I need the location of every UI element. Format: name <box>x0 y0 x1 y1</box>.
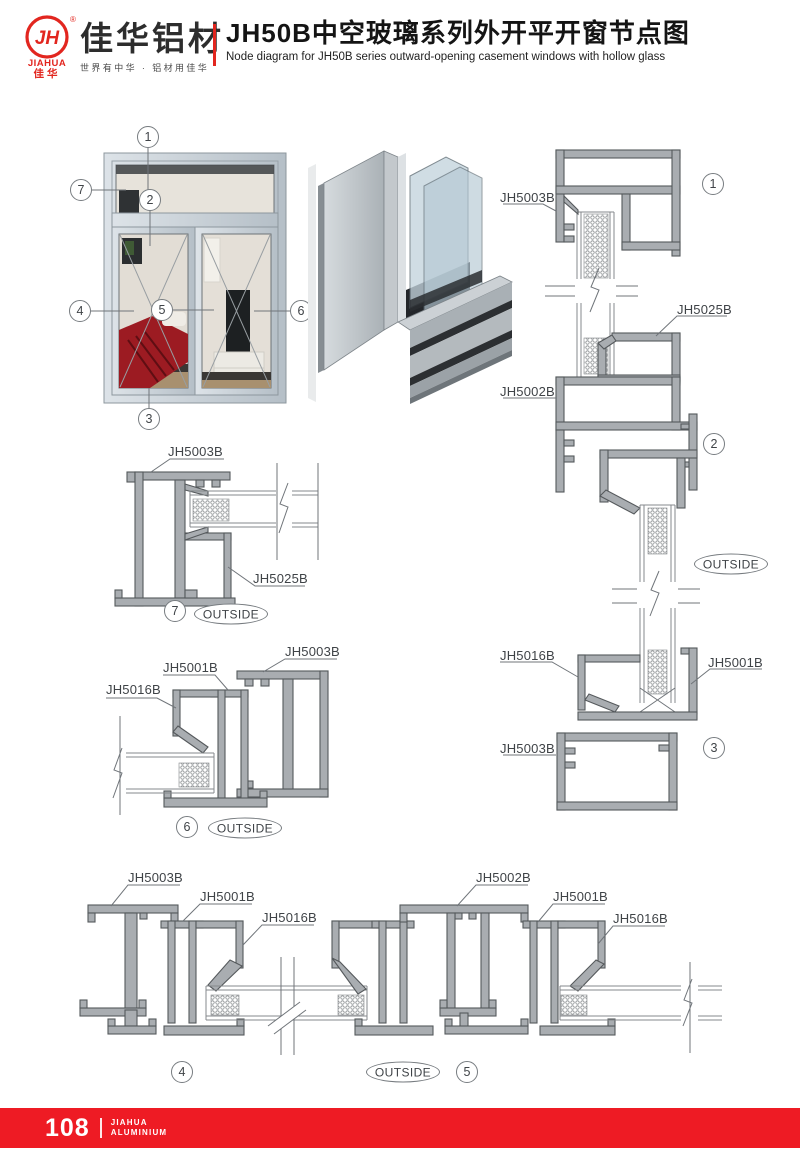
break-symbol-mullion <box>268 957 306 1055</box>
profile-jh5002b <box>556 375 697 430</box>
callout-2: 2 <box>139 189 161 211</box>
detail-1-number: 1 <box>702 173 724 195</box>
callout-4: 4 <box>69 300 91 322</box>
horizontal-section-drawing <box>75 860 730 1090</box>
registered-mark: ® <box>70 15 76 24</box>
callout-3: 3 <box>138 408 160 430</box>
detail-7-number: 7 <box>164 600 186 622</box>
profile-jh5016b-d4 <box>196 921 243 991</box>
brand-block: 佳华铝材 世界有中华 · 铝材用佳华 <box>80 22 224 74</box>
header: JH ® JIAHUA 佳华 佳华铝材 世界有中华 · 铝材用佳华 JH50B中… <box>0 0 800 80</box>
profile-jh5016b-d6 <box>173 690 218 753</box>
profile-3d-render <box>308 143 520 411</box>
transom-window <box>112 165 278 227</box>
break-symbol-d6 <box>110 716 126 815</box>
logo-monogram: JH <box>35 28 61 49</box>
vertical-section-drawing <box>495 145 800 813</box>
detail-5-number: 5 <box>456 1061 478 1083</box>
title-block: JH50B中空玻璃系列外开平开窗节点图 Node diagram for JH5… <box>226 20 690 63</box>
label-jh5001b-d5: JH5001B <box>553 889 608 904</box>
label-jh5016b-d6: JH5016B <box>106 682 161 697</box>
footer-brand-line1: JIAHUA <box>111 1118 168 1128</box>
window-elevation-drawing <box>60 125 310 437</box>
profile-jh5001b-d4 <box>161 921 244 1035</box>
outside-label-bottom: OUTSIDE <box>366 1062 440 1083</box>
label-jh5025b-d7: JH5025B <box>253 571 308 586</box>
page-subtitle: Node diagram for JH50B series outward-op… <box>226 51 690 63</box>
footer-brand-line2: ALUMINIUM <box>111 1128 168 1138</box>
label-jh5003b-d4: JH5003B <box>128 870 183 885</box>
detail-2-number: 2 <box>703 433 725 455</box>
footer-bar: 108 JIAHUA ALUMINIUM <box>0 1108 800 1148</box>
detail-7-drawing <box>100 442 325 630</box>
glass-unit-d6 <box>118 753 214 793</box>
detail-4-number: 4 <box>171 1061 193 1083</box>
break-symbol-d7 <box>276 463 318 560</box>
label-jh5001b-d3: JH5001B <box>708 655 763 670</box>
profile-jh5002b-d5 <box>400 905 528 1034</box>
jiahua-logo: JH ® JIAHUA 佳华 <box>17 11 79 75</box>
glass-unit-d7 <box>190 491 318 527</box>
outside-label-d2: OUTSIDE <box>694 554 768 575</box>
label-jh5003b-d3: JH5003B <box>500 741 555 756</box>
profile-jh5003b-d6 <box>237 671 328 797</box>
detail-3-number: 3 <box>703 737 725 759</box>
title-divider <box>213 24 216 66</box>
label-jh5002b-d5: JH5002B <box>476 870 531 885</box>
callout-5: 5 <box>151 299 173 321</box>
footer-brand: JIAHUA ALUMINIUM <box>111 1118 168 1138</box>
label-jh5003b-d1: JH5003B <box>500 190 555 205</box>
label-jh5016b-d3: JH5016B <box>500 648 555 663</box>
profile-jh5003b-sill <box>557 733 677 810</box>
label-jh5025b-d1: JH5025B <box>677 302 732 317</box>
catalog-page: JH ® JIAHUA 佳华 佳华铝材 世界有中华 · 铝材用佳华 JH50B中… <box>0 0 800 1167</box>
page-title: JH50B中空玻璃系列外开平开窗节点图 <box>226 20 690 47</box>
outside-label-d6: OUTSIDE <box>208 818 282 839</box>
label-jh5016b-d5: JH5016B <box>613 911 668 926</box>
break-symbol-lower <box>612 571 700 616</box>
label-jh5002b-d1: JH5002B <box>500 384 555 399</box>
outside-label-d7: OUTSIDE <box>194 604 268 625</box>
brand-name: 佳华铝材 <box>80 22 224 55</box>
profile-jh5016b-bottom <box>578 655 640 712</box>
profile-jh5016b-d5-left <box>332 921 379 994</box>
label-jh5016b-d4: JH5016B <box>262 910 317 925</box>
section-leader-lines <box>500 204 762 755</box>
label-jh5001b-d4: JH5001B <box>200 889 255 904</box>
detail-6-number: 6 <box>176 816 198 838</box>
page-number: 108 <box>45 1114 90 1143</box>
profile-jh5016b-d5-right <box>558 921 605 991</box>
logo-name-cn: 佳华 <box>34 67 61 80</box>
callout-1: 1 <box>137 126 159 148</box>
footer-divider <box>100 1118 102 1138</box>
break-symbol-right <box>681 962 698 1053</box>
label-jh5003b-d7: JH5003B <box>168 444 223 459</box>
profile-jh5003b-head <box>556 150 680 256</box>
label-jh5001b-d6: JH5001B <box>163 660 218 675</box>
callout-7: 7 <box>70 179 92 201</box>
brand-slogan: 世界有中华 · 铝材用佳华 <box>80 61 224 74</box>
label-jh5003b-d6: JH5003B <box>285 644 340 659</box>
